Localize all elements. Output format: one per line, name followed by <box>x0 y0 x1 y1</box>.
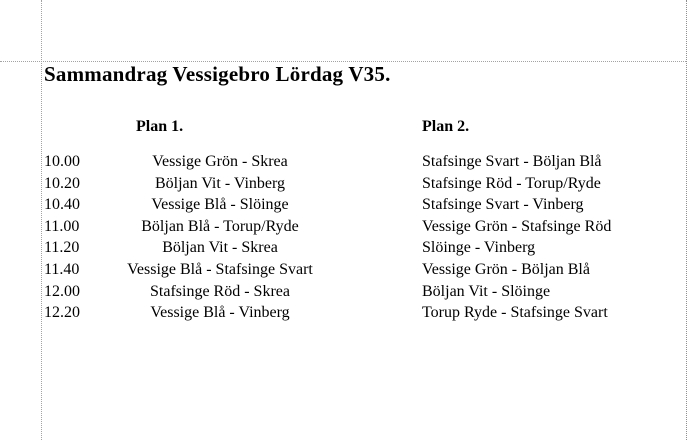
match-time: 10.20 <box>44 173 80 195</box>
document-page: Sammandrag Vessigebro Lördag V35. Plan 1… <box>0 0 689 440</box>
plan1-match: Vessige Blå - Vinberg <box>84 302 356 324</box>
schedule-row: 11.20 Böljan Vit - Skrea Slöinge - Vinbe… <box>0 237 689 259</box>
match-time: 10.40 <box>44 194 80 216</box>
plan1-match: Böljan Vit - Skrea <box>84 237 356 259</box>
column-header-plan1: Plan 1. <box>136 118 183 136</box>
schedule-row: 11.40 Vessige Blå - Stafsinge Svart Vess… <box>0 259 689 281</box>
schedule-row: 12.20 Vessige Blå - Vinberg Torup Ryde -… <box>0 302 689 324</box>
match-time: 10.00 <box>44 151 80 173</box>
schedule-row: 11.00 Böljan Blå - Torup/Ryde Vessige Gr… <box>0 216 689 238</box>
schedule-rows: 10.00 Vessige Grön - Skrea Stafsinge Sva… <box>0 151 689 324</box>
plan2-match: Böljan Vit - Slöinge <box>422 281 550 303</box>
plan2-match: Stafsinge Svart - Böljan Blå <box>422 151 602 173</box>
match-time: 12.00 <box>44 281 80 303</box>
plan1-match: Vessige Blå - Slöinge <box>84 194 356 216</box>
plan2-match: Slöinge - Vinberg <box>422 237 535 259</box>
plan2-match: Vessige Grön - Stafsinge Röd <box>422 216 611 238</box>
match-time: 11.20 <box>44 237 79 259</box>
plan1-match: Böljan Blå - Torup/Ryde <box>84 216 356 238</box>
plan1-match: Stafsinge Röd - Skrea <box>84 281 356 303</box>
page-title: Sammandrag Vessigebro Lördag V35. <box>44 62 391 87</box>
plan2-match: Vessige Grön - Böljan Blå <box>422 259 590 281</box>
schedule-row: 10.40 Vessige Blå - Slöinge Stafsinge Sv… <box>0 194 689 216</box>
plan1-match: Vessige Blå - Stafsinge Svart <box>84 259 356 281</box>
column-header-plan2: Plan 2. <box>422 118 469 136</box>
plan1-match: Vessige Grön - Skrea <box>84 151 356 173</box>
match-time: 12.20 <box>44 302 80 324</box>
plan2-match: Stafsinge Svart - Vinberg <box>422 194 584 216</box>
schedule-row: 10.20 Böljan Vit - Vinberg Stafsinge Röd… <box>0 173 689 195</box>
match-time: 11.40 <box>44 259 79 281</box>
plan2-match: Torup Ryde - Stafsinge Svart <box>422 302 608 324</box>
plan1-match: Böljan Vit - Vinberg <box>84 173 356 195</box>
schedule-row: 12.00 Stafsinge Röd - Skrea Böljan Vit -… <box>0 281 689 303</box>
plan2-match: Stafsinge Röd - Torup/Ryde <box>422 173 601 195</box>
match-time: 11.00 <box>44 216 79 238</box>
schedule-row: 10.00 Vessige Grön - Skrea Stafsinge Sva… <box>0 151 689 173</box>
